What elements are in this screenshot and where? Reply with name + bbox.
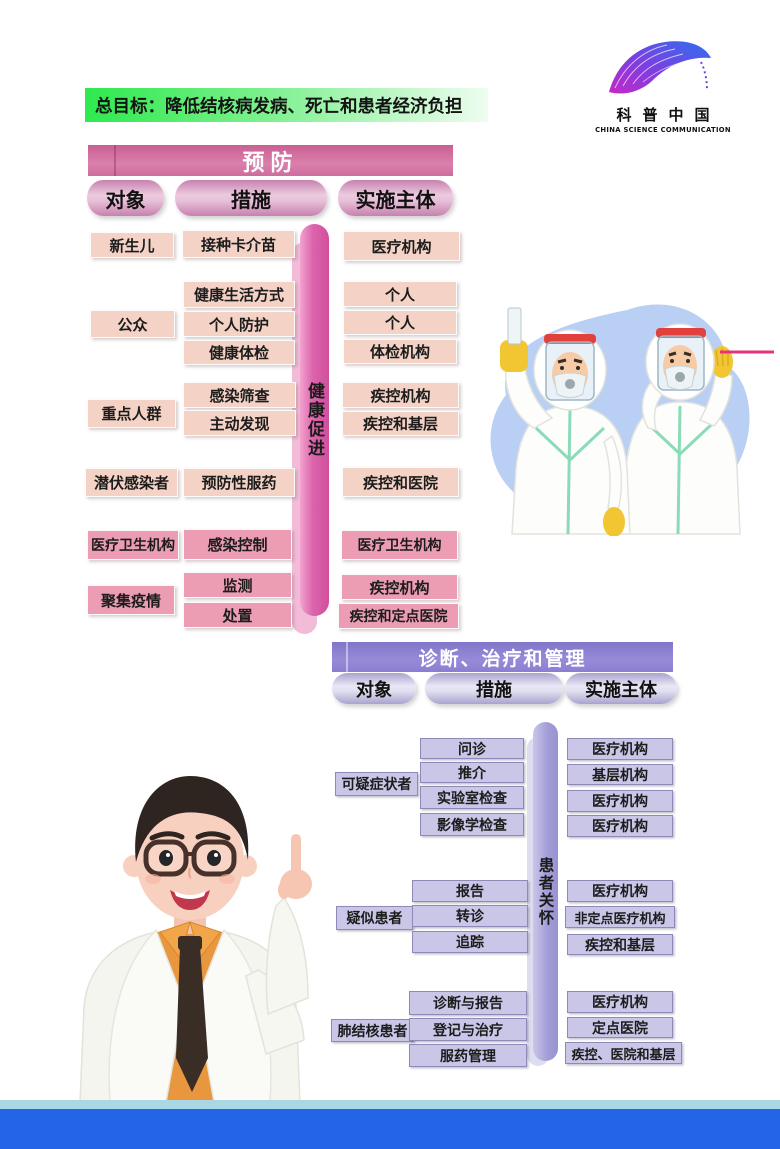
diagnosis-measure-box: 推介: [420, 762, 524, 783]
prevention-actor-box: 疾控和医院: [342, 467, 459, 497]
diagnosis-col-actor: 实施主体: [565, 673, 677, 704]
prevention-object-box: 重点人群: [87, 399, 176, 428]
diagnosis-side-label: 患者关怀: [533, 722, 558, 1061]
prevention-actor-box: 疾控和定点医院: [338, 603, 459, 629]
footer-blue-bar: [0, 1109, 780, 1149]
diagnosis-actor-box: 医疗机构: [567, 880, 673, 902]
prevention-actor-box: 个人: [343, 281, 457, 307]
prevention-measure-box: 接种卡介苗: [182, 230, 295, 258]
logo-en-text: CHINA SCIENCE COMMUNICATION: [588, 126, 738, 134]
goal-banner: 总目标：降低结核病发病、死亡和患者经济负担: [85, 88, 488, 122]
logo-swoosh-icon: [603, 36, 723, 98]
prevention-actor-box: 医疗机构: [343, 231, 460, 261]
diagnosis-measure-box: 追踪: [412, 931, 528, 953]
diagnosis-measure-box: 登记与治疗: [409, 1018, 527, 1041]
prevention-object-box: 公众: [90, 310, 175, 338]
diagnosis-object-box: 疑似患者: [336, 906, 413, 930]
diagnosis-object-box: 肺结核患者: [331, 1019, 414, 1042]
prevention-side-label: 健康促进: [300, 224, 329, 616]
doctor-illustration: [52, 762, 327, 1102]
diagnosis-actor-box: 定点医院: [567, 1017, 673, 1038]
prevention-measure-box: 感染筛查: [183, 382, 296, 408]
prevention-actor-box: 疾控机构: [342, 382, 459, 408]
prevention-measure-box: 健康体检: [183, 340, 295, 365]
prevention-measure-box: 处置: [183, 602, 292, 628]
diagnosis-measure-box: 影像学检查: [420, 813, 524, 836]
prevention-measure-box: 健康生活方式: [183, 281, 295, 308]
prevention-side-capsule: 健康促进: [300, 224, 329, 616]
prevention-measure-box: 预防性服药: [183, 468, 295, 497]
footer-light-strip: [0, 1100, 780, 1109]
prevention-col-actor: 实施主体: [338, 180, 453, 216]
prevention-actor-box: 个人: [343, 310, 457, 335]
diagnosis-actor-box: 医疗机构: [567, 815, 673, 837]
prevention-measure-box: 个人防护: [183, 311, 295, 337]
diagnosis-col-measure: 措施: [425, 673, 563, 704]
poster-canvas: 总目标：降低结核病发病、死亡和患者经济负担 科普中国 CHINA SCIENCE…: [0, 0, 780, 1149]
diagnosis-object-box: 可疑症状者: [335, 772, 418, 796]
prevention-object-box: 新生儿: [90, 232, 174, 258]
diagnosis-col-object: 对象: [332, 673, 416, 704]
prevention-object-box: 医疗卫生机构: [87, 530, 179, 560]
diagnosis-measure-box: 诊断与报告: [409, 991, 527, 1015]
diagnosis-measure-box: 转诊: [412, 905, 528, 927]
diagnosis-actor-box: 医疗机构: [567, 991, 673, 1013]
diagnosis-section-title: 诊断、治疗和管理: [332, 642, 673, 672]
diagnosis-side-capsule: 患者关怀: [533, 722, 558, 1061]
prevention-measure-box: 监测: [183, 572, 292, 598]
prevention-actor-box: 医疗卫生机构: [341, 530, 458, 560]
diagnosis-actor-box: 非定点医疗机构: [565, 906, 675, 928]
prevention-actor-box: 体检机构: [343, 339, 457, 364]
prevention-actor-box: 疾控和基层: [342, 411, 459, 436]
diagnosis-actor-box: 疾控和基层: [567, 934, 673, 955]
diagnosis-actor-box: 医疗机构: [567, 738, 673, 760]
prevention-section-title: 预防: [88, 145, 453, 176]
diagnosis-measure-box: 服药管理: [409, 1044, 527, 1067]
kepu-china-logo: 科普中国 CHINA SCIENCE COMMUNICATION: [588, 36, 738, 134]
prevention-object-box: 聚集疫情: [87, 585, 175, 615]
diagnosis-measure-box: 报告: [412, 880, 528, 902]
diagnosis-actor-box: 疾控、医院和基层: [565, 1042, 682, 1064]
prevention-measure-box: 主动发现: [183, 410, 296, 436]
prevention-col-measure: 措施: [175, 180, 327, 216]
diagnosis-measure-box: 实验室检查: [420, 786, 524, 809]
logo-cn-text: 科普中国: [588, 104, 749, 125]
prevention-object-box: 潜伏感染者: [85, 468, 178, 497]
prevention-measure-box: 感染控制: [183, 529, 292, 560]
diagnosis-actor-box: 医疗机构: [567, 790, 673, 812]
diagnosis-actor-box: 基层机构: [567, 764, 673, 785]
prevention-col-object: 对象: [87, 180, 164, 216]
diagnosis-measure-box: 问诊: [420, 738, 524, 759]
prevention-actor-box: 疾控机构: [341, 574, 458, 600]
ppe-workers-illustration: [462, 278, 780, 536]
